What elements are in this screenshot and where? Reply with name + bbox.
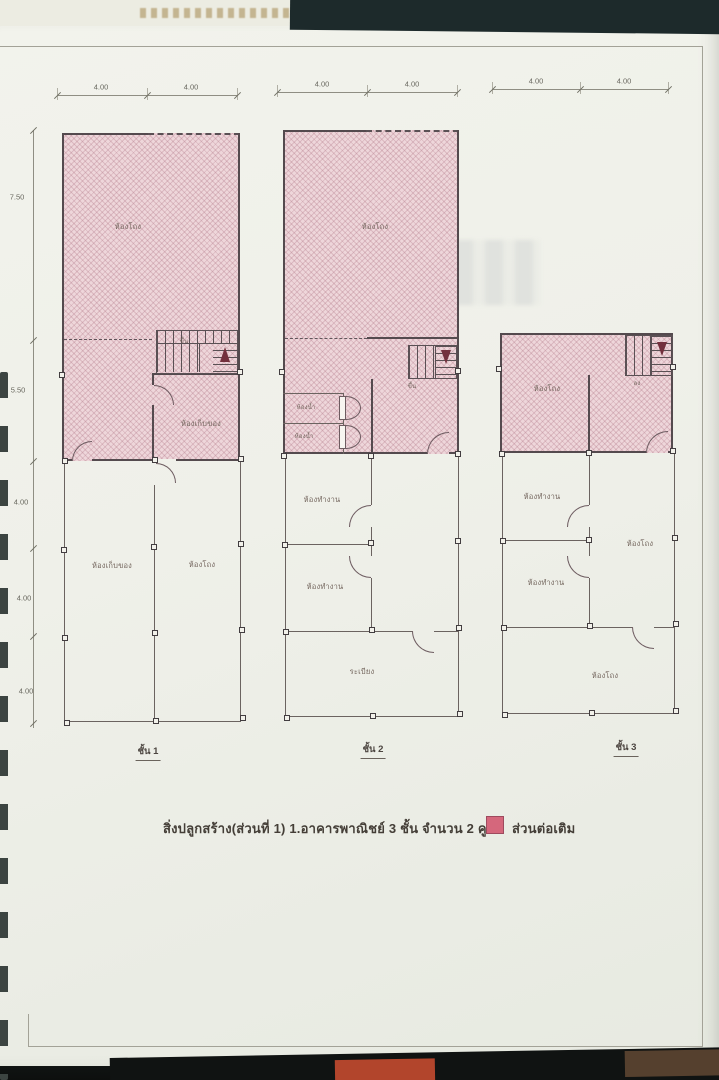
floor-label: ชั้น 1 xyxy=(136,744,161,761)
wall xyxy=(371,379,373,452)
room-label: ห้องเก็บของ xyxy=(92,560,132,572)
photo-background-top xyxy=(290,0,719,34)
dimension-line xyxy=(33,130,34,728)
column-marker xyxy=(456,625,462,631)
dim-label: 7.50 xyxy=(10,193,25,202)
dim-label: 4.00 xyxy=(94,83,109,92)
column-marker xyxy=(151,544,157,550)
room-label: ห้องโถง xyxy=(592,670,619,682)
dim-label: 4.00 xyxy=(405,80,420,89)
column-marker xyxy=(62,458,68,464)
staircase xyxy=(625,335,673,376)
room-label: ห้องทำงาน xyxy=(528,577,565,589)
room-label: ห้องทำงาน xyxy=(524,491,561,503)
column-marker xyxy=(673,708,679,714)
column-marker xyxy=(455,451,461,457)
wall xyxy=(285,544,371,545)
wall-dashed xyxy=(366,130,459,132)
dim-label: 4.00 xyxy=(19,687,34,696)
dim-label: 4.00 xyxy=(14,498,29,507)
drawing-caption: สิ่งปลูกสร้าง(ส่วนที่ 1) 1.อาคารพาณิชย์ … xyxy=(163,818,503,839)
column-marker xyxy=(152,457,158,463)
wall xyxy=(588,375,590,453)
room-label: ห้องทำงาน xyxy=(304,494,341,506)
stair-label: ขึ้น xyxy=(180,336,189,346)
wall xyxy=(152,373,154,385)
wall xyxy=(62,133,148,135)
wall xyxy=(152,405,154,461)
wall xyxy=(457,130,459,454)
door-opening xyxy=(156,459,176,461)
dim-label: 4.00 xyxy=(184,83,199,92)
background-text-smudge xyxy=(140,8,290,18)
room-label: ห้องน้ำ xyxy=(295,431,314,441)
drawing-frame xyxy=(28,1014,29,1046)
wall xyxy=(64,461,65,723)
room-label: ห้องทำงาน xyxy=(307,581,344,593)
floor-label: ชั้น 2 xyxy=(361,742,386,759)
room-label: ห้องโถง xyxy=(534,383,561,395)
column-marker xyxy=(153,718,159,724)
red-object xyxy=(335,1058,435,1080)
wall xyxy=(238,133,240,461)
column-marker xyxy=(672,535,678,541)
wall xyxy=(371,578,372,632)
column-marker xyxy=(589,710,595,716)
wall xyxy=(283,423,344,424)
column-marker xyxy=(282,542,288,548)
addition-area-fill xyxy=(62,133,240,461)
drawing-frame xyxy=(702,46,703,1047)
room-label: ระเบียง xyxy=(350,666,375,678)
room-label: ห้องโถง xyxy=(189,559,216,571)
stair-treads xyxy=(626,336,652,375)
stair-down-arrow-icon xyxy=(441,350,451,364)
column-marker xyxy=(670,364,676,370)
door-leaf xyxy=(339,396,346,420)
stair-up-arrow-icon xyxy=(220,347,230,362)
column-marker xyxy=(237,369,243,375)
column-marker xyxy=(152,630,158,636)
room-label: ห้องโถง xyxy=(362,221,389,233)
wall-dashed xyxy=(148,133,240,135)
wall xyxy=(502,453,503,714)
column-marker xyxy=(455,368,461,374)
legend-label: ส่วนต่อเติม xyxy=(512,818,575,839)
column-marker xyxy=(501,625,507,631)
wall xyxy=(500,333,502,453)
column-marker xyxy=(283,629,289,635)
stair-down-arrow-icon xyxy=(657,342,667,356)
column-marker xyxy=(370,713,376,719)
column-marker xyxy=(239,627,245,633)
wall xyxy=(283,452,427,454)
photographed-floor-plan: 7.50 5.50 4.00 4.00 4.00 4.00 4.00 ขึ้น xyxy=(0,0,719,1080)
dim-label: 4.00 xyxy=(315,80,330,89)
wall-dashed xyxy=(64,339,152,340)
column-marker xyxy=(500,538,506,544)
column-marker xyxy=(284,715,290,721)
dim-label: 4.00 xyxy=(17,594,32,603)
legend-swatch xyxy=(486,816,504,834)
wall xyxy=(285,454,286,717)
door-leaf xyxy=(339,425,346,449)
room-label: ห้องโถง xyxy=(627,538,654,550)
wall xyxy=(285,631,412,632)
column-marker xyxy=(281,453,287,459)
column-marker xyxy=(64,720,70,726)
dim-label: 4.00 xyxy=(617,77,632,86)
column-marker xyxy=(502,712,508,718)
column-marker xyxy=(61,547,67,553)
column-marker xyxy=(279,369,285,375)
column-marker xyxy=(499,451,505,457)
drawing-frame xyxy=(28,1046,703,1047)
wall xyxy=(502,540,589,541)
column-marker xyxy=(369,627,375,633)
room-label: ห้องน้ำ xyxy=(297,402,316,412)
column-marker xyxy=(673,621,679,627)
column-marker xyxy=(368,540,374,546)
column-marker xyxy=(455,538,461,544)
column-marker xyxy=(62,635,68,641)
wall xyxy=(458,454,459,716)
dim-label: 5.50 xyxy=(11,386,26,395)
column-marker xyxy=(586,450,592,456)
room-label: ห้องโถง xyxy=(115,221,142,233)
wall xyxy=(502,627,632,628)
wall xyxy=(176,459,240,461)
stair-treads xyxy=(157,343,200,372)
wall xyxy=(154,485,155,722)
column-marker xyxy=(368,453,374,459)
column-marker xyxy=(238,541,244,547)
wall xyxy=(434,631,459,632)
wall xyxy=(674,453,675,713)
wall xyxy=(367,337,459,339)
staircase xyxy=(156,330,238,374)
column-marker xyxy=(586,537,592,543)
wall xyxy=(589,578,590,628)
floor-label: ชั้น 3 xyxy=(614,740,639,757)
wall xyxy=(283,393,344,394)
drawing-frame xyxy=(0,46,702,47)
wall xyxy=(92,459,156,461)
wall xyxy=(589,453,590,505)
stair-label: ลง xyxy=(633,378,640,388)
brown-object xyxy=(625,1049,719,1077)
column-marker xyxy=(240,715,246,721)
stair-treads xyxy=(409,346,436,378)
wall xyxy=(283,130,368,132)
column-marker xyxy=(457,711,463,717)
wall xyxy=(371,454,372,505)
column-marker xyxy=(59,372,65,378)
room-label: ห้องเก็บของ xyxy=(181,418,221,430)
dim-label: 4.00 xyxy=(529,77,544,86)
wall xyxy=(654,627,675,628)
wall xyxy=(500,451,646,453)
wall xyxy=(240,461,241,721)
column-marker xyxy=(587,623,593,629)
wall xyxy=(283,130,285,454)
binding-holes xyxy=(0,372,8,1080)
stair-label: ขึ้น xyxy=(408,381,417,391)
staircase xyxy=(408,345,457,379)
wall xyxy=(62,133,64,461)
wall-dashed xyxy=(285,338,367,339)
column-marker xyxy=(496,366,502,372)
column-marker xyxy=(238,456,244,462)
column-marker xyxy=(670,448,676,454)
